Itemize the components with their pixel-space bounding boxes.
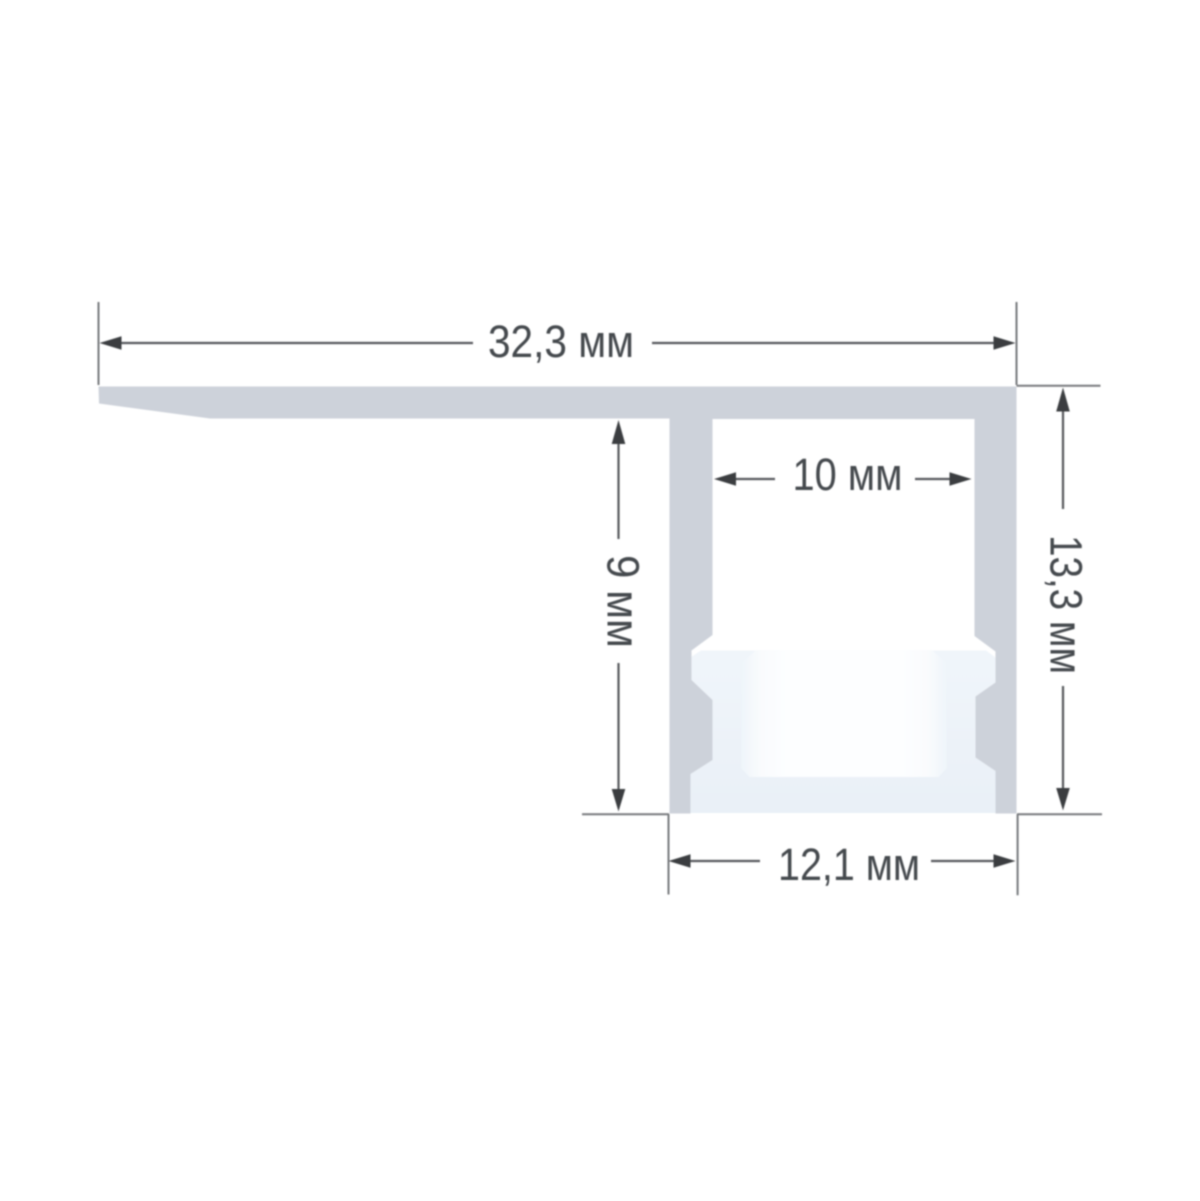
svg-text:9 мм: 9 мм xyxy=(598,555,649,648)
svg-text:12,1 мм: 12,1 мм xyxy=(778,839,920,890)
svg-text:10 мм: 10 мм xyxy=(793,449,903,500)
svg-text:13,3 мм: 13,3 мм xyxy=(1041,535,1092,674)
svg-text:32,3 мм: 32,3 мм xyxy=(488,316,634,367)
